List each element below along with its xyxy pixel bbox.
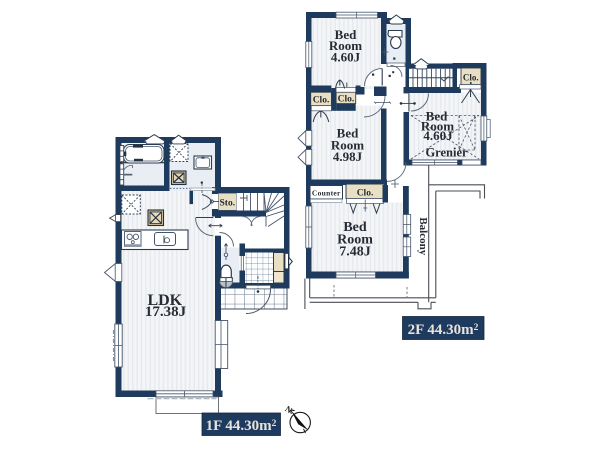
svg-text:Clo.: Clo.	[338, 94, 355, 104]
svg-text:4.98J: 4.98J	[333, 149, 363, 164]
svg-text:Balcony: Balcony	[417, 217, 429, 255]
svg-text:4.60J: 4.60J	[331, 50, 361, 65]
svg-text:Clo.: Clo.	[313, 96, 330, 106]
svg-text:2F 44.30m2: 2F 44.30m2	[408, 322, 479, 338]
svg-text:Grenier: Grenier	[425, 145, 468, 159]
svg-text:17.38J: 17.38J	[145, 304, 187, 320]
svg-text:7.48J: 7.48J	[339, 245, 371, 260]
svg-text:Clo.: Clo.	[463, 73, 479, 83]
svg-text:4.60J: 4.60J	[423, 128, 453, 143]
svg-text:1F 44.30m2: 1F 44.30m2	[206, 418, 277, 434]
svg-text:Counter: Counter	[312, 189, 341, 198]
svg-text:Clo.: Clo.	[357, 188, 374, 198]
svg-text:Sto.: Sto.	[220, 199, 236, 209]
